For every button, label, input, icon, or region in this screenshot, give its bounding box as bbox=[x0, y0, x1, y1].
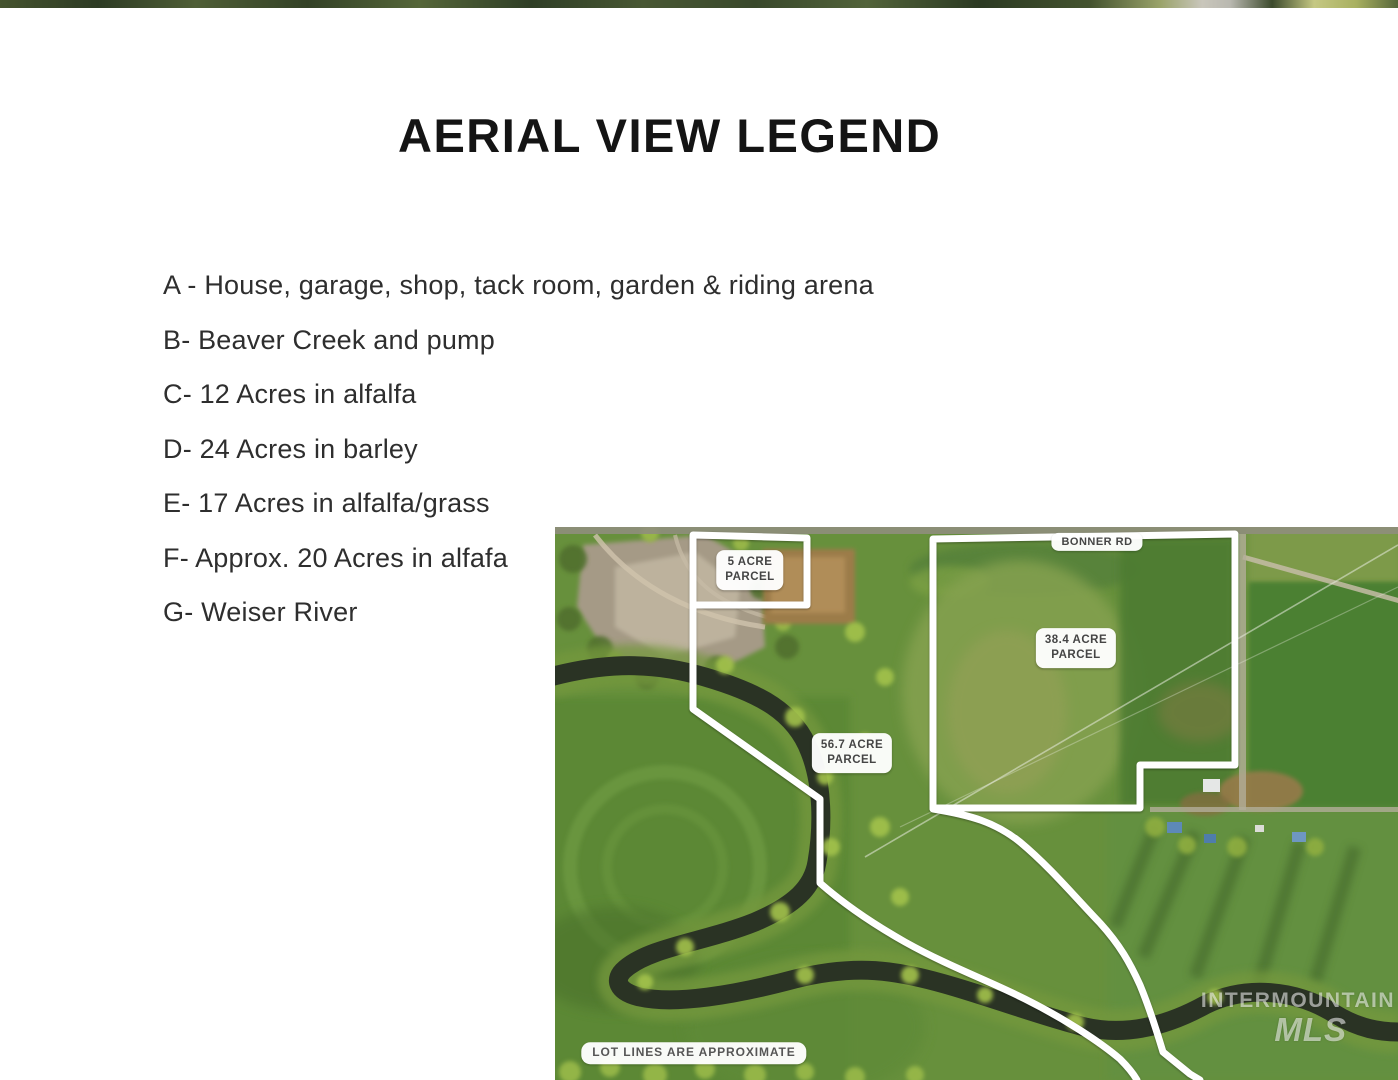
bonner-road bbox=[555, 527, 1398, 534]
parcel-label-38-acre: 38.4 ACRE PARCEL bbox=[1036, 628, 1116, 668]
legend-item-e: E- 17 Acres in alfalfa/grass bbox=[163, 476, 874, 531]
legend-item-b: B- Beaver Creek and pump bbox=[163, 313, 874, 368]
parcel-label-5-acre: 5 ACRE PARCEL bbox=[716, 550, 783, 590]
terrain bbox=[555, 527, 1398, 1080]
side-road-vertical bbox=[1239, 534, 1246, 810]
legend-item-a: A - House, garage, shop, tack room, gard… bbox=[163, 258, 874, 313]
top-edge-photo-sliver bbox=[0, 0, 1398, 8]
side-road-horizontal bbox=[1150, 807, 1398, 812]
parcel-label-56-acre: 56.7 ACRE PARCEL bbox=[812, 733, 892, 773]
legend-item-d: D- 24 Acres in barley bbox=[163, 422, 874, 477]
page-title: AERIAL VIEW LEGEND bbox=[398, 108, 941, 163]
lot-lines-disclaimer: LOT LINES ARE APPROXIMATE bbox=[581, 1042, 806, 1064]
page: AERIAL VIEW LEGEND A - House, garage, sh… bbox=[0, 0, 1398, 1080]
road-label-bonner-rd: BONNER RD bbox=[1051, 533, 1142, 551]
aerial-photo: BONNER RD 5 ACRE PARCEL 38.4 ACRE PARCEL… bbox=[555, 527, 1398, 1080]
legend-item-c: C- 12 Acres in alfalfa bbox=[163, 367, 874, 422]
aerial-terrain bbox=[555, 527, 1398, 1080]
